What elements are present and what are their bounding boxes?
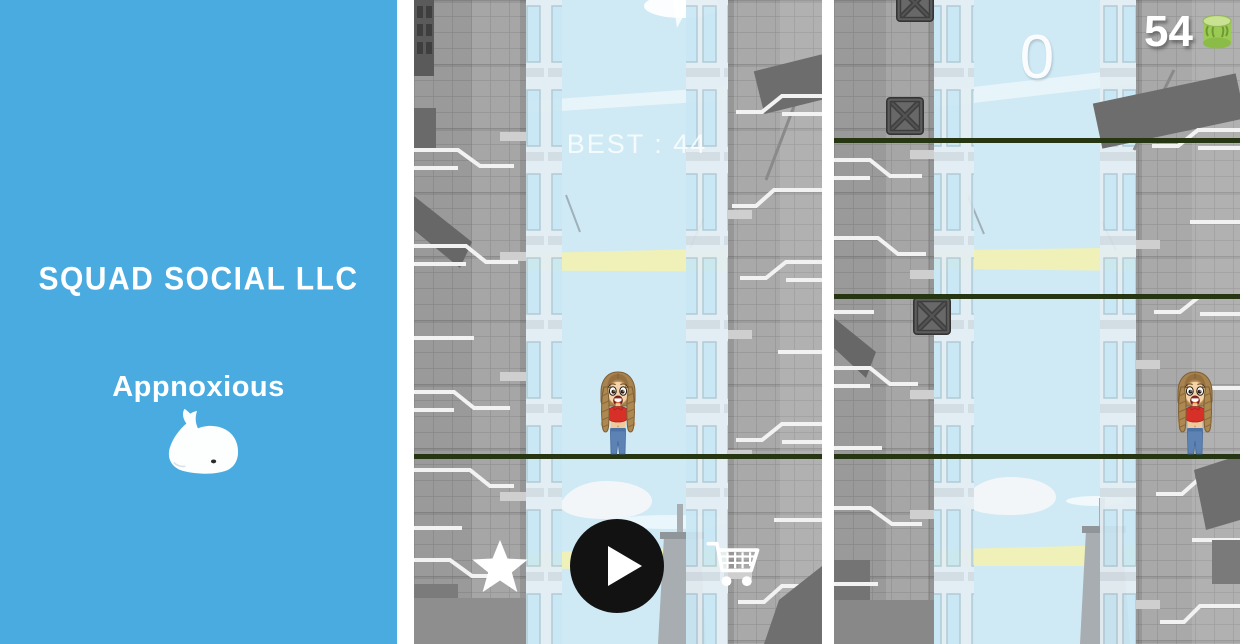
- studio-name: Appnoxious: [0, 371, 397, 404]
- coin-counter: 54: [1144, 10, 1234, 54]
- branding-panel: SQUAD SOCIAL LLC Appnoxious: [0, 0, 397, 644]
- crate-obstacle: [887, 98, 923, 134]
- cart-icon: [704, 536, 764, 592]
- gameplay-screen: 0 54: [834, 0, 1240, 644]
- menu-screen: BEST : 44: [414, 0, 822, 644]
- wire-platform: [834, 294, 1240, 299]
- play-button[interactable]: [570, 519, 664, 613]
- wire-platform: [414, 454, 822, 459]
- best-score-label: BEST : 44: [414, 129, 822, 160]
- cityscape-background: [834, 0, 1240, 644]
- play-icon: [570, 519, 664, 613]
- star-icon: [471, 538, 529, 596]
- wire-platform: [834, 138, 1240, 143]
- rate-button[interactable]: [471, 538, 529, 596]
- coin-stack-icon: [1200, 12, 1234, 52]
- company-name: SQUAD SOCIAL LLC: [0, 262, 397, 299]
- shop-button[interactable]: [704, 536, 764, 592]
- whale-icon: [157, 406, 241, 476]
- crate-obstacle: [914, 298, 950, 334]
- coin-count: 54: [1144, 10, 1193, 54]
- wire-platform: [834, 454, 1240, 459]
- crate-obstacle: [897, 0, 933, 21]
- app-screenshot: SQUAD SOCIAL LLC Appnoxious: [0, 0, 1240, 644]
